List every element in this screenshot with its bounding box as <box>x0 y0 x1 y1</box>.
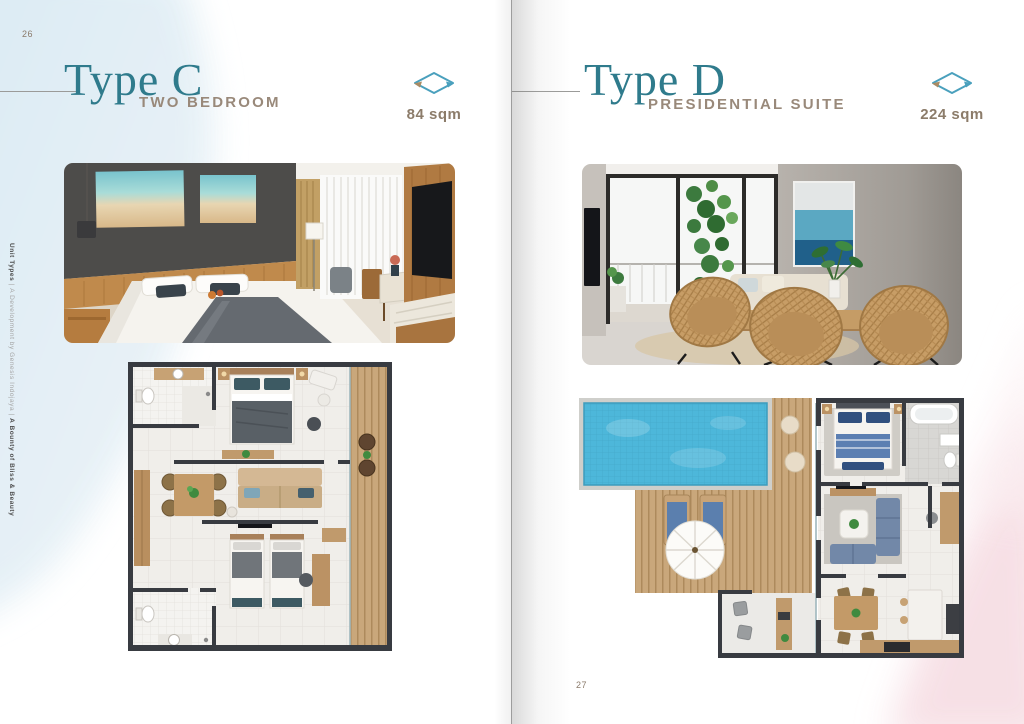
two-bedroom-floorplan <box>126 362 394 656</box>
area-block-right: 224 sqm <box>906 70 998 123</box>
area-dimension-icon <box>412 70 456 96</box>
page-left: 26 Type C TWO BEDROOM 84 sqm <box>0 0 512 724</box>
fold-line <box>511 0 512 724</box>
area-block-left: 84 sqm <box>388 70 480 123</box>
fold-shadow-right <box>512 0 570 724</box>
dining-render <box>582 164 962 365</box>
page-subtitle-right: PRESIDENTIAL SUITE <box>648 97 846 112</box>
page-right: Type D PRESIDENTIAL SUITE 224 sqm <box>512 0 1024 724</box>
area-label-right: 224 sqm <box>906 106 998 123</box>
type-d-floorplan <box>578 398 966 660</box>
type-c-photo <box>64 163 455 343</box>
area-dimension-icon <box>930 70 974 96</box>
fold-shadow-left <box>494 0 512 724</box>
page-number-right: 27 <box>576 680 587 690</box>
bedroom-render <box>64 163 455 343</box>
sidebar-vertical-text: Unit Types | A Development by Genesis In… <box>8 243 24 523</box>
sidebar-part-bold-1: Unit Types <box>8 243 15 281</box>
sidebar-part-bold-2: A Bounty of Bliss & Beauty <box>8 418 15 516</box>
brochure-spread: 26 Type C TWO BEDROOM 84 sqm <box>0 0 1024 724</box>
page-subtitle-left: TWO BEDROOM <box>139 95 281 110</box>
type-d-photo <box>582 164 962 365</box>
presidential-suite-floorplan <box>578 398 966 660</box>
page-number-left: 26 <box>22 29 33 39</box>
area-label-left: 84 sqm <box>388 106 480 123</box>
sidebar-part-light: A Development by Genesis Indojaya <box>8 288 15 411</box>
type-c-floorplan <box>126 362 394 656</box>
